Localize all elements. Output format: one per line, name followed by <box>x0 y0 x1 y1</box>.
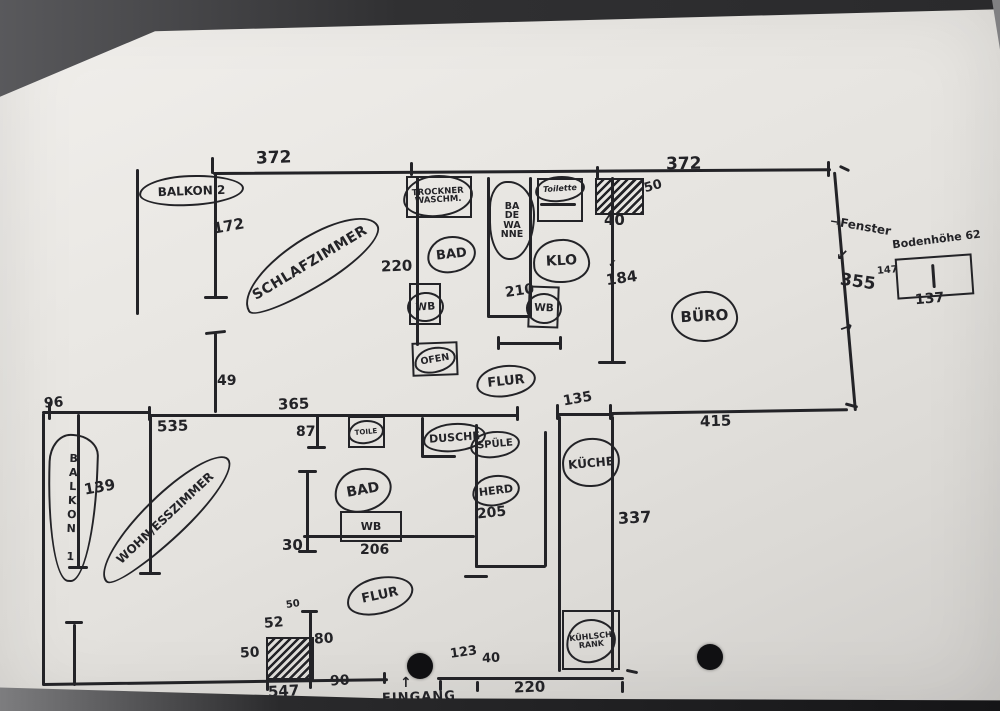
washbasin-bubble-upper: WB <box>406 291 445 324</box>
wall <box>42 413 45 685</box>
dim-50-niche: 50 <box>643 178 664 195</box>
dim-147: 147 <box>877 265 899 277</box>
room-label-spuele: SPÜLE <box>477 438 514 451</box>
room-bubble-bad-upper: BAD <box>425 234 478 276</box>
tick <box>204 296 228 299</box>
arrow-right-icon: → <box>838 318 855 336</box>
oven-box: OFEN <box>411 341 458 377</box>
bathtub-label: NNE <box>501 230 523 240</box>
room-bubble-schlafzimmer: SCHLAFZIMMER <box>230 201 389 324</box>
dim-206: 206 <box>360 543 389 557</box>
fenster-label: Fenster <box>839 216 892 239</box>
tick <box>301 610 318 613</box>
dim-40-entry: 40 <box>482 652 501 666</box>
dim-80: 80 <box>314 631 334 646</box>
tick <box>139 572 161 575</box>
room-bubble-herd: HERD <box>470 472 521 509</box>
dim-40-niche: 40 <box>604 213 625 228</box>
tick <box>410 162 413 176</box>
dim-365: 365 <box>278 396 310 412</box>
room-label-flur-lower: FLUR <box>360 585 399 605</box>
dim-172: 172 <box>212 216 245 236</box>
fridge-label: RANK <box>578 640 604 651</box>
wall <box>42 411 150 414</box>
tick <box>559 336 562 350</box>
room-bubble-flur-upper: FLUR <box>474 362 537 400</box>
room-label-herd: HERD <box>478 483 513 498</box>
dim-372-right: 372 <box>666 156 702 174</box>
tick <box>621 681 624 693</box>
room-bubble-balkon2: BALKON 2 <box>138 173 244 208</box>
dim-90: 90 <box>330 673 350 688</box>
dim-220-bottom: 220 <box>514 679 546 695</box>
washbasin-label-lower: WB <box>361 521 382 532</box>
check-mark-icon: ✓ <box>608 258 617 269</box>
room-label-klo: KLO <box>546 253 578 269</box>
wall <box>558 416 561 672</box>
arrow-down-left-icon: ↙ <box>836 248 849 263</box>
dim-220: 220 <box>381 258 413 274</box>
dim-135: 135 <box>562 390 593 409</box>
toilet-bubble-lower: TOILE <box>347 418 385 445</box>
hole-punch <box>407 653 433 679</box>
dim-415: 415 <box>700 413 732 429</box>
hatched-closet <box>266 637 314 680</box>
washer-dryer-bubble: TROCKNER WASCHM. <box>402 173 474 219</box>
entrance-arrow-icon: ↑ <box>400 676 412 690</box>
wall <box>73 624 76 686</box>
wall <box>487 315 532 318</box>
fridge-box: KÜHLSCH RANK <box>562 610 620 670</box>
tick <box>307 446 326 449</box>
room-label-bad-lower: BAD <box>345 480 380 500</box>
wall <box>213 168 831 175</box>
room-bubble-wohnesszimmer: WOHN/ESSZIMMER <box>86 443 243 594</box>
room-label-flur-upper: FLUR <box>487 373 525 390</box>
room-bubble-klo: KLO <box>532 238 591 285</box>
window-note: Bodenhöhe 62 <box>892 229 982 251</box>
dim-52: 52 <box>263 615 284 631</box>
tick <box>839 165 850 172</box>
toilet-box-upper: Toilette <box>537 178 583 222</box>
room-bubble-buero: BÜRO <box>670 289 740 343</box>
dim-337: 337 <box>618 509 652 527</box>
washbasin-box-upper: WB <box>409 283 441 325</box>
oven-label: OFEN <box>420 353 450 367</box>
toilet-box-lower: TOILE <box>348 416 385 448</box>
tick <box>476 681 479 692</box>
washer-dryer-box: TROCKNER WASCHM. <box>406 176 472 218</box>
wall <box>306 472 309 552</box>
tick <box>626 669 638 674</box>
room-label-kueche: KÜCHE <box>568 455 615 471</box>
dim-210: 210 <box>504 282 535 300</box>
room-label-wohnesszimmer: WOHN/ESSZIMMER <box>114 470 215 566</box>
room-label-balkon1: BALKON 1 <box>65 452 80 564</box>
dim-50-left: 50 <box>240 645 260 660</box>
tick <box>298 470 317 473</box>
dim-137: 137 <box>914 291 944 307</box>
room-label-balkon2: BALKON 2 <box>157 183 225 197</box>
dim-535: 535 <box>157 418 189 434</box>
floor-plan-photo: TROCKNER WASCHM. BAD WB OFEN BA DE WA NN… <box>0 0 1000 711</box>
dim-372-left: 372 <box>256 149 292 167</box>
washbasin-label-klo: WB <box>534 303 554 314</box>
dim-49: 49 <box>217 374 236 388</box>
washbasin-label-upper: WB <box>415 301 435 313</box>
room-label-waschmaschine: WASCHM. <box>415 195 462 206</box>
tick <box>65 621 83 624</box>
tick <box>464 575 488 578</box>
hole-punch <box>697 644 723 670</box>
tick <box>598 361 626 364</box>
dim-139: 139 <box>83 477 116 497</box>
toilet-label-lower: TOILE <box>354 428 377 437</box>
wall <box>136 169 139 315</box>
dimension-line <box>499 342 561 345</box>
wall <box>544 431 547 567</box>
dim-123: 123 <box>449 644 478 661</box>
toilet-label-upper: Toilette <box>543 184 577 194</box>
wall <box>421 455 456 458</box>
window-center-line <box>931 264 936 288</box>
washbasin-box-lower: WB <box>340 511 402 542</box>
hatched-niche <box>595 178 644 215</box>
dim-87: 87 <box>296 425 315 439</box>
room-bubble-balkon1: BALKON 1 <box>44 433 99 583</box>
room-bubble-flur-lower: FLUR <box>343 570 417 620</box>
tick <box>516 406 519 421</box>
tick <box>383 672 386 684</box>
wall <box>150 414 518 417</box>
room-label-bad-upper: BAD <box>436 246 468 262</box>
wall <box>558 413 614 416</box>
wall <box>475 565 546 568</box>
dim-50-small: 50 <box>285 599 300 611</box>
dim-355: 355 <box>839 272 877 294</box>
oven-bubble: OFEN <box>412 344 458 377</box>
room-bubble-bad-lower: BAD <box>331 463 396 516</box>
dim-30: 30 <box>282 538 303 553</box>
room-label-schlafzimmer: SCHLAFZIMMER <box>250 223 369 302</box>
room-label-buero: BÜRO <box>680 308 729 325</box>
tick <box>497 336 500 350</box>
wall <box>316 415 319 447</box>
dim-184: 184 <box>605 269 638 288</box>
fridge-bubble: KÜHLSCH RANK <box>564 617 618 666</box>
toilet-shelf-line <box>540 203 576 206</box>
dim-96: 96 <box>44 395 64 410</box>
dim-205: 205 <box>476 505 507 522</box>
tick <box>211 157 214 174</box>
tick <box>827 161 830 177</box>
toilet-bubble-upper: Toilette <box>534 174 586 203</box>
